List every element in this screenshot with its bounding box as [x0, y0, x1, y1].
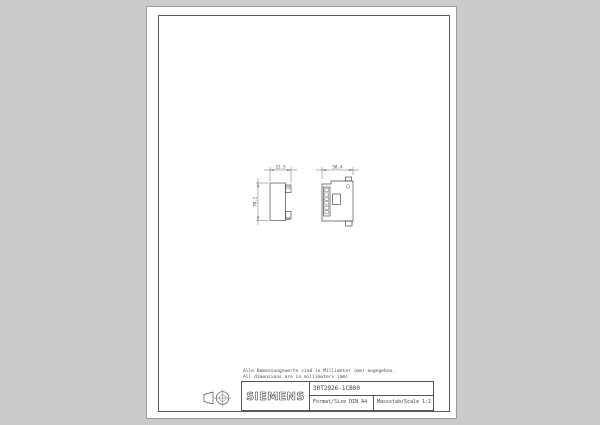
note-line-german: Alle Bemessungswerte sind in Millimeter … — [243, 368, 395, 374]
dim-side-width: 22.5 — [275, 165, 286, 170]
side-view: 22.5 70.2 — [252, 165, 297, 225]
logo-cell: SIEMENS — [242, 382, 310, 410]
dim-side-height: 70.2 — [252, 196, 257, 207]
title-block-right: 3RT2926-1CB00 Format/Size DIN A4 Masssta… — [310, 382, 433, 410]
scale-cell: Massstab/Scale 1:1 — [374, 396, 433, 410]
notes-block: Alle Bemessungswerte sind in Millimeter … — [242, 366, 422, 382]
siemens-logo: SIEMENS — [246, 390, 305, 403]
note-line-english: All dimensions are in millimeters (mm) — [243, 374, 348, 380]
title-block: SIEMENS 3RT2926-1CB00 Format/Size DIN A4… — [241, 381, 434, 411]
part-number: 3RT2926-1CB00 — [310, 382, 433, 396]
title-block-bottom-row: Format/Size DIN A4 Massstab/Scale 1:1 — [310, 396, 433, 410]
format-cell: Format/Size DIN A4 — [310, 396, 374, 410]
dimension-drawing: 22.5 70.2 — [242, 147, 376, 242]
dim-front-width: 58.4 — [332, 165, 343, 170]
front-view: 58.4 — [316, 165, 359, 226]
drawing-sheet: 22.5 70.2 — [146, 6, 457, 419]
first-angle-projection-icon — [201, 387, 237, 411]
viewer-background: 22.5 70.2 — [0, 0, 600, 425]
